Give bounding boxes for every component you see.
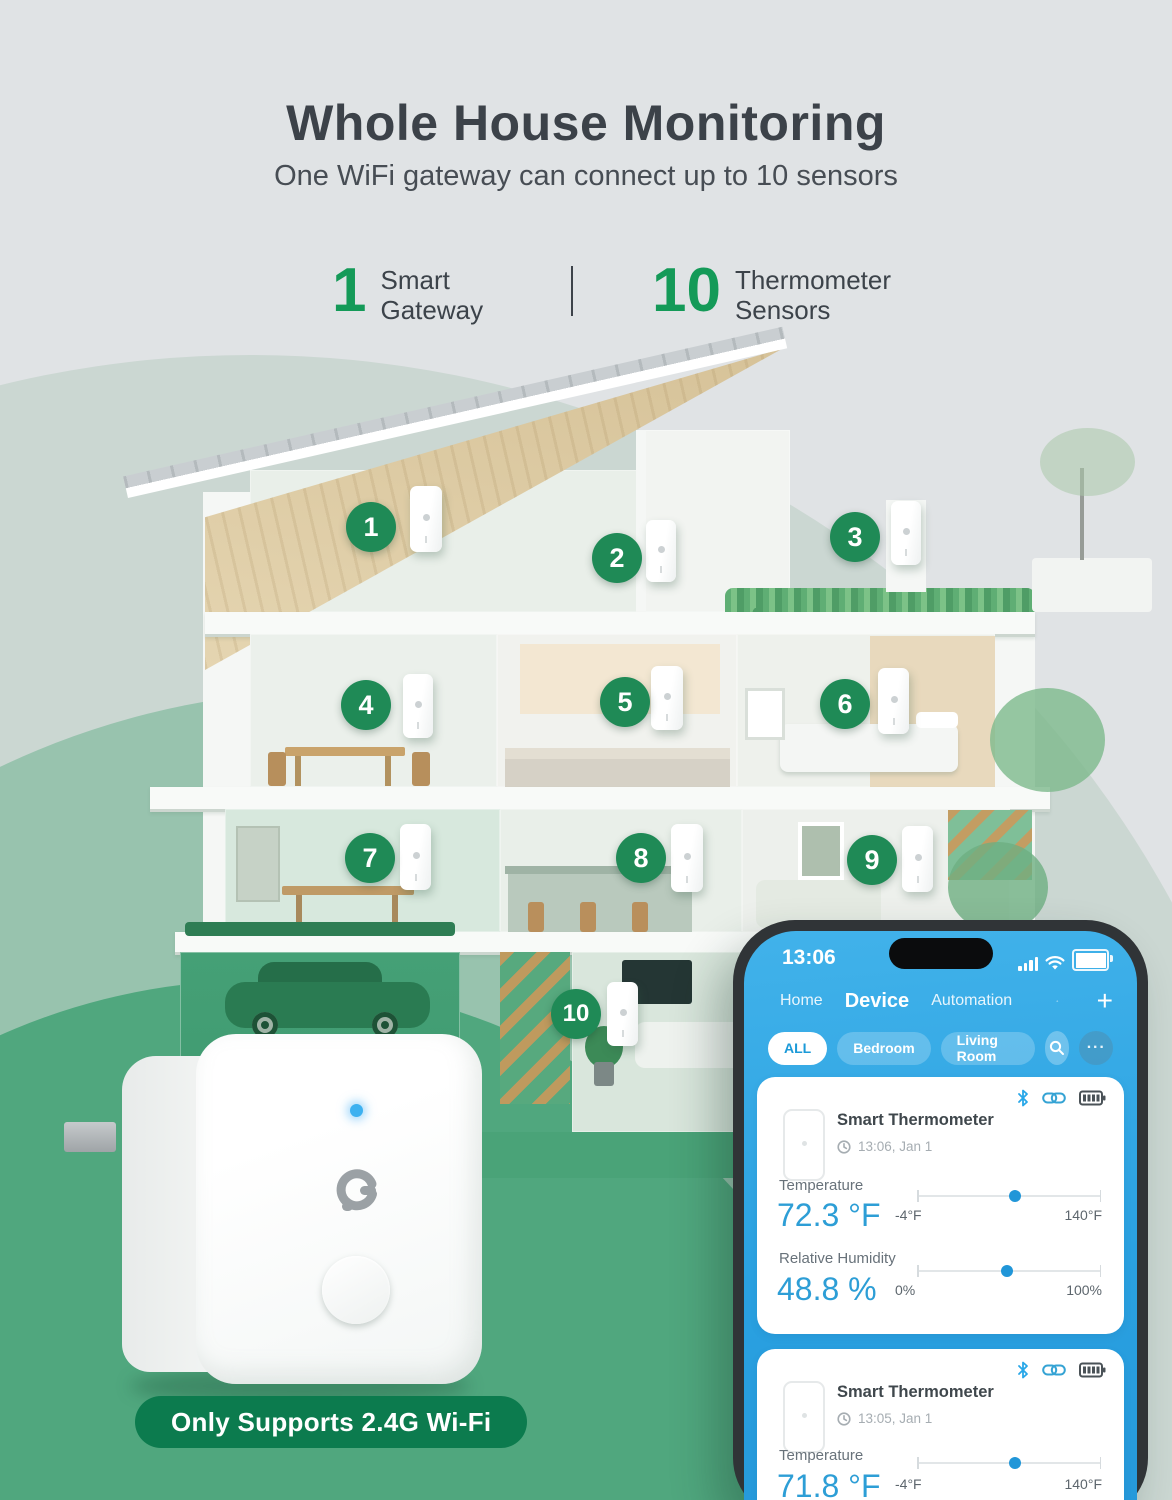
temperature-slider[interactable]	[917, 1195, 1101, 1197]
terrace-tree-foliage	[1040, 428, 1135, 496]
device-timestamp-row: 13:06, Jan 1	[837, 1139, 932, 1154]
link-icon	[1042, 1362, 1066, 1378]
marker-9: 9	[847, 835, 897, 885]
thermometer-sensor-10	[607, 982, 638, 1046]
kitchen-counter	[505, 748, 730, 759]
humidity-max: 100%	[1066, 1282, 1102, 1298]
thermometer-sensor-4	[403, 674, 433, 738]
thermometer-sensor-3	[891, 501, 921, 565]
device-card-1[interactable]: Smart Thermometer 13:06, Jan 1 Temperatu…	[757, 1077, 1124, 1334]
marker-number: 3	[847, 522, 862, 553]
marker-number: 1	[363, 512, 378, 543]
battery-level-icon	[1079, 1090, 1106, 1106]
stat-label-line: Sensors	[735, 296, 891, 326]
thermometer-sensor-8	[671, 824, 703, 892]
marker-5: 5	[600, 677, 650, 727]
temperature-slider-dot[interactable]	[1009, 1190, 1021, 1202]
stat-sensors-count: 10	[652, 262, 721, 321]
marker-6: 6	[820, 679, 870, 729]
wall-art	[745, 688, 785, 740]
status-time: 13:06	[782, 946, 836, 970]
link-icon	[1042, 1090, 1066, 1106]
marker-number: 5	[617, 687, 632, 718]
bar-stool	[580, 902, 596, 932]
clock-icon	[837, 1140, 851, 1154]
tab-automation[interactable]: Automation	[931, 992, 1012, 1010]
gateway-pair-button	[322, 1256, 390, 1324]
stat-label-line: Gateway	[380, 296, 483, 326]
marker-4: 4	[341, 680, 391, 730]
device-card-2[interactable]: Smart Thermometer 13:05, Jan 1 Temperatu…	[757, 1349, 1124, 1500]
more-filters-button[interactable]: ···	[1079, 1031, 1113, 1065]
humidity-label: Relative Humidity	[779, 1250, 896, 1267]
thermometer-sensor-1	[410, 486, 442, 552]
device-timestamp: 13:06, Jan 1	[858, 1139, 932, 1154]
stat-label-line: Smart	[380, 266, 483, 296]
thermometer-sensor-6	[878, 668, 909, 734]
stat-gateway-count: 1	[332, 262, 366, 321]
chip-all[interactable]: ALL	[768, 1032, 827, 1065]
search-button[interactable]	[1045, 1031, 1070, 1065]
product-infographic: 1 2 3 4 5 6 7 8 9 10 Whole House Monitor…	[0, 0, 1172, 1500]
marker-1: 1	[346, 502, 396, 552]
temperature-label: Temperature	[779, 1177, 863, 1194]
thermometer-sensor-5	[651, 666, 683, 730]
temperature-value: 72.3 °F	[777, 1197, 881, 1234]
temperature-max: 140°F	[1064, 1207, 1102, 1223]
device-name: Smart Thermometer	[837, 1383, 994, 1402]
page-subtitle: One WiFi gateway can connect up to 10 se…	[0, 160, 1172, 193]
bar-stool	[528, 902, 544, 932]
device-thumbnail	[783, 1109, 825, 1181]
dining-chair	[268, 752, 286, 786]
thermometer-sensor-7	[400, 824, 431, 890]
kitchen-cabinet	[505, 759, 730, 787]
marker-8: 8	[616, 833, 666, 883]
table-leg	[385, 756, 391, 786]
thermometer-sensor-2	[646, 520, 676, 582]
gateway-status-led	[350, 1104, 363, 1117]
bar-stool	[632, 902, 648, 932]
gateway-plug-prong	[64, 1122, 116, 1152]
terrace-planter	[1032, 558, 1152, 612]
roof-terrace-grass	[725, 588, 1035, 614]
bar-counter-top	[505, 866, 695, 874]
add-device-button[interactable]: +	[1097, 987, 1113, 1015]
govee-logo	[332, 1164, 384, 1221]
marker-number: 8	[633, 843, 648, 874]
wine-rack	[236, 826, 280, 902]
dining-table-2	[282, 886, 414, 895]
phone-notch	[889, 938, 993, 969]
stat-divider	[571, 266, 573, 316]
stat-label-line: Thermometer	[735, 266, 891, 296]
attic-divider	[636, 430, 646, 612]
wifi-support-badge-text: Only Supports 2.4G Wi-Fi	[171, 1407, 491, 1438]
thermometer-sensor-9	[902, 826, 933, 892]
temperature-min: -4°F	[895, 1207, 922, 1223]
humidity-min: 0%	[895, 1282, 915, 1298]
clock-icon	[837, 1412, 851, 1426]
marker-number: 6	[837, 689, 852, 720]
stat-sensors: 10 Thermometer Sensors	[652, 262, 891, 326]
temperature-slider[interactable]	[917, 1462, 1101, 1464]
wall-art-2	[798, 822, 844, 880]
tab-home[interactable]: Home	[780, 992, 823, 1010]
temperature-max: 140°F	[1064, 1476, 1102, 1492]
wifi-icon	[1045, 956, 1065, 971]
table-leg	[295, 756, 301, 786]
temperature-value: 71.8 °F	[777, 1468, 881, 1500]
temperature-slider-dot[interactable]	[1009, 1457, 1021, 1469]
garage-roof-planter	[185, 922, 455, 936]
stat-sensors-label: Thermometer Sensors	[735, 266, 891, 326]
marker-number: 7	[362, 843, 377, 874]
device-thumbnail	[783, 1381, 825, 1453]
search-icon	[1049, 1040, 1065, 1056]
device-name: Smart Thermometer	[837, 1111, 994, 1130]
tab-device[interactable]: Device	[845, 990, 910, 1013]
humidity-value: 48.8 %	[777, 1271, 877, 1308]
marker-number: 2	[609, 543, 624, 574]
phone-mockup: 13:06 Home Device Automation	[733, 920, 1148, 1500]
marker-number: 10	[563, 1000, 590, 1028]
gateway-devices-icon[interactable]	[1056, 987, 1059, 1015]
marker-2: 2	[592, 533, 642, 583]
marker-number: 9	[864, 845, 879, 876]
device-timestamp: 13:05, Jan 1	[858, 1411, 932, 1426]
bed-pillow	[916, 712, 958, 728]
wifi-support-badge: Only Supports 2.4G Wi-Fi	[135, 1396, 527, 1448]
marker-7: 7	[345, 833, 395, 883]
device-card-icons	[1017, 1089, 1106, 1107]
humidity-slider-dot[interactable]	[1001, 1265, 1013, 1277]
battery-level-icon	[1079, 1362, 1106, 1378]
marker-10: 10	[551, 989, 601, 1039]
app-nav: Home Device Automation +	[780, 987, 1113, 1015]
stat-gateway-label: Smart Gateway	[380, 266, 483, 326]
outdoor-tree-foliage	[990, 688, 1105, 792]
temperature-label: Temperature	[779, 1447, 863, 1464]
page-title: Whole House Monitoring	[0, 94, 1172, 152]
device-card-icons	[1017, 1361, 1106, 1379]
indoor-plant-large	[948, 842, 1048, 932]
battery-icon	[1072, 949, 1109, 971]
bed	[780, 724, 958, 772]
temperature-min: -4°F	[895, 1476, 922, 1492]
device-timestamp-row: 13:05, Jan 1	[837, 1411, 932, 1426]
status-icons	[1018, 949, 1109, 971]
humidity-slider[interactable]	[917, 1270, 1101, 1272]
plant-pot	[594, 1062, 614, 1086]
filter-chips: ALL Bedroom Living Room ···	[768, 1031, 1113, 1065]
app-screen: 13:06 Home Device Automation	[744, 931, 1137, 1500]
chip-living-room[interactable]: Living Room	[941, 1032, 1035, 1065]
bluetooth-icon	[1017, 1089, 1029, 1107]
dining-table	[285, 747, 405, 756]
bluetooth-icon	[1017, 1361, 1029, 1379]
signal-icon	[1018, 957, 1038, 971]
marker-number: 4	[358, 690, 373, 721]
marker-3: 3	[830, 512, 880, 562]
dining-chair	[412, 752, 430, 786]
stat-gateway: 1 Smart Gateway	[332, 262, 483, 326]
chip-bedroom[interactable]: Bedroom	[837, 1032, 930, 1065]
